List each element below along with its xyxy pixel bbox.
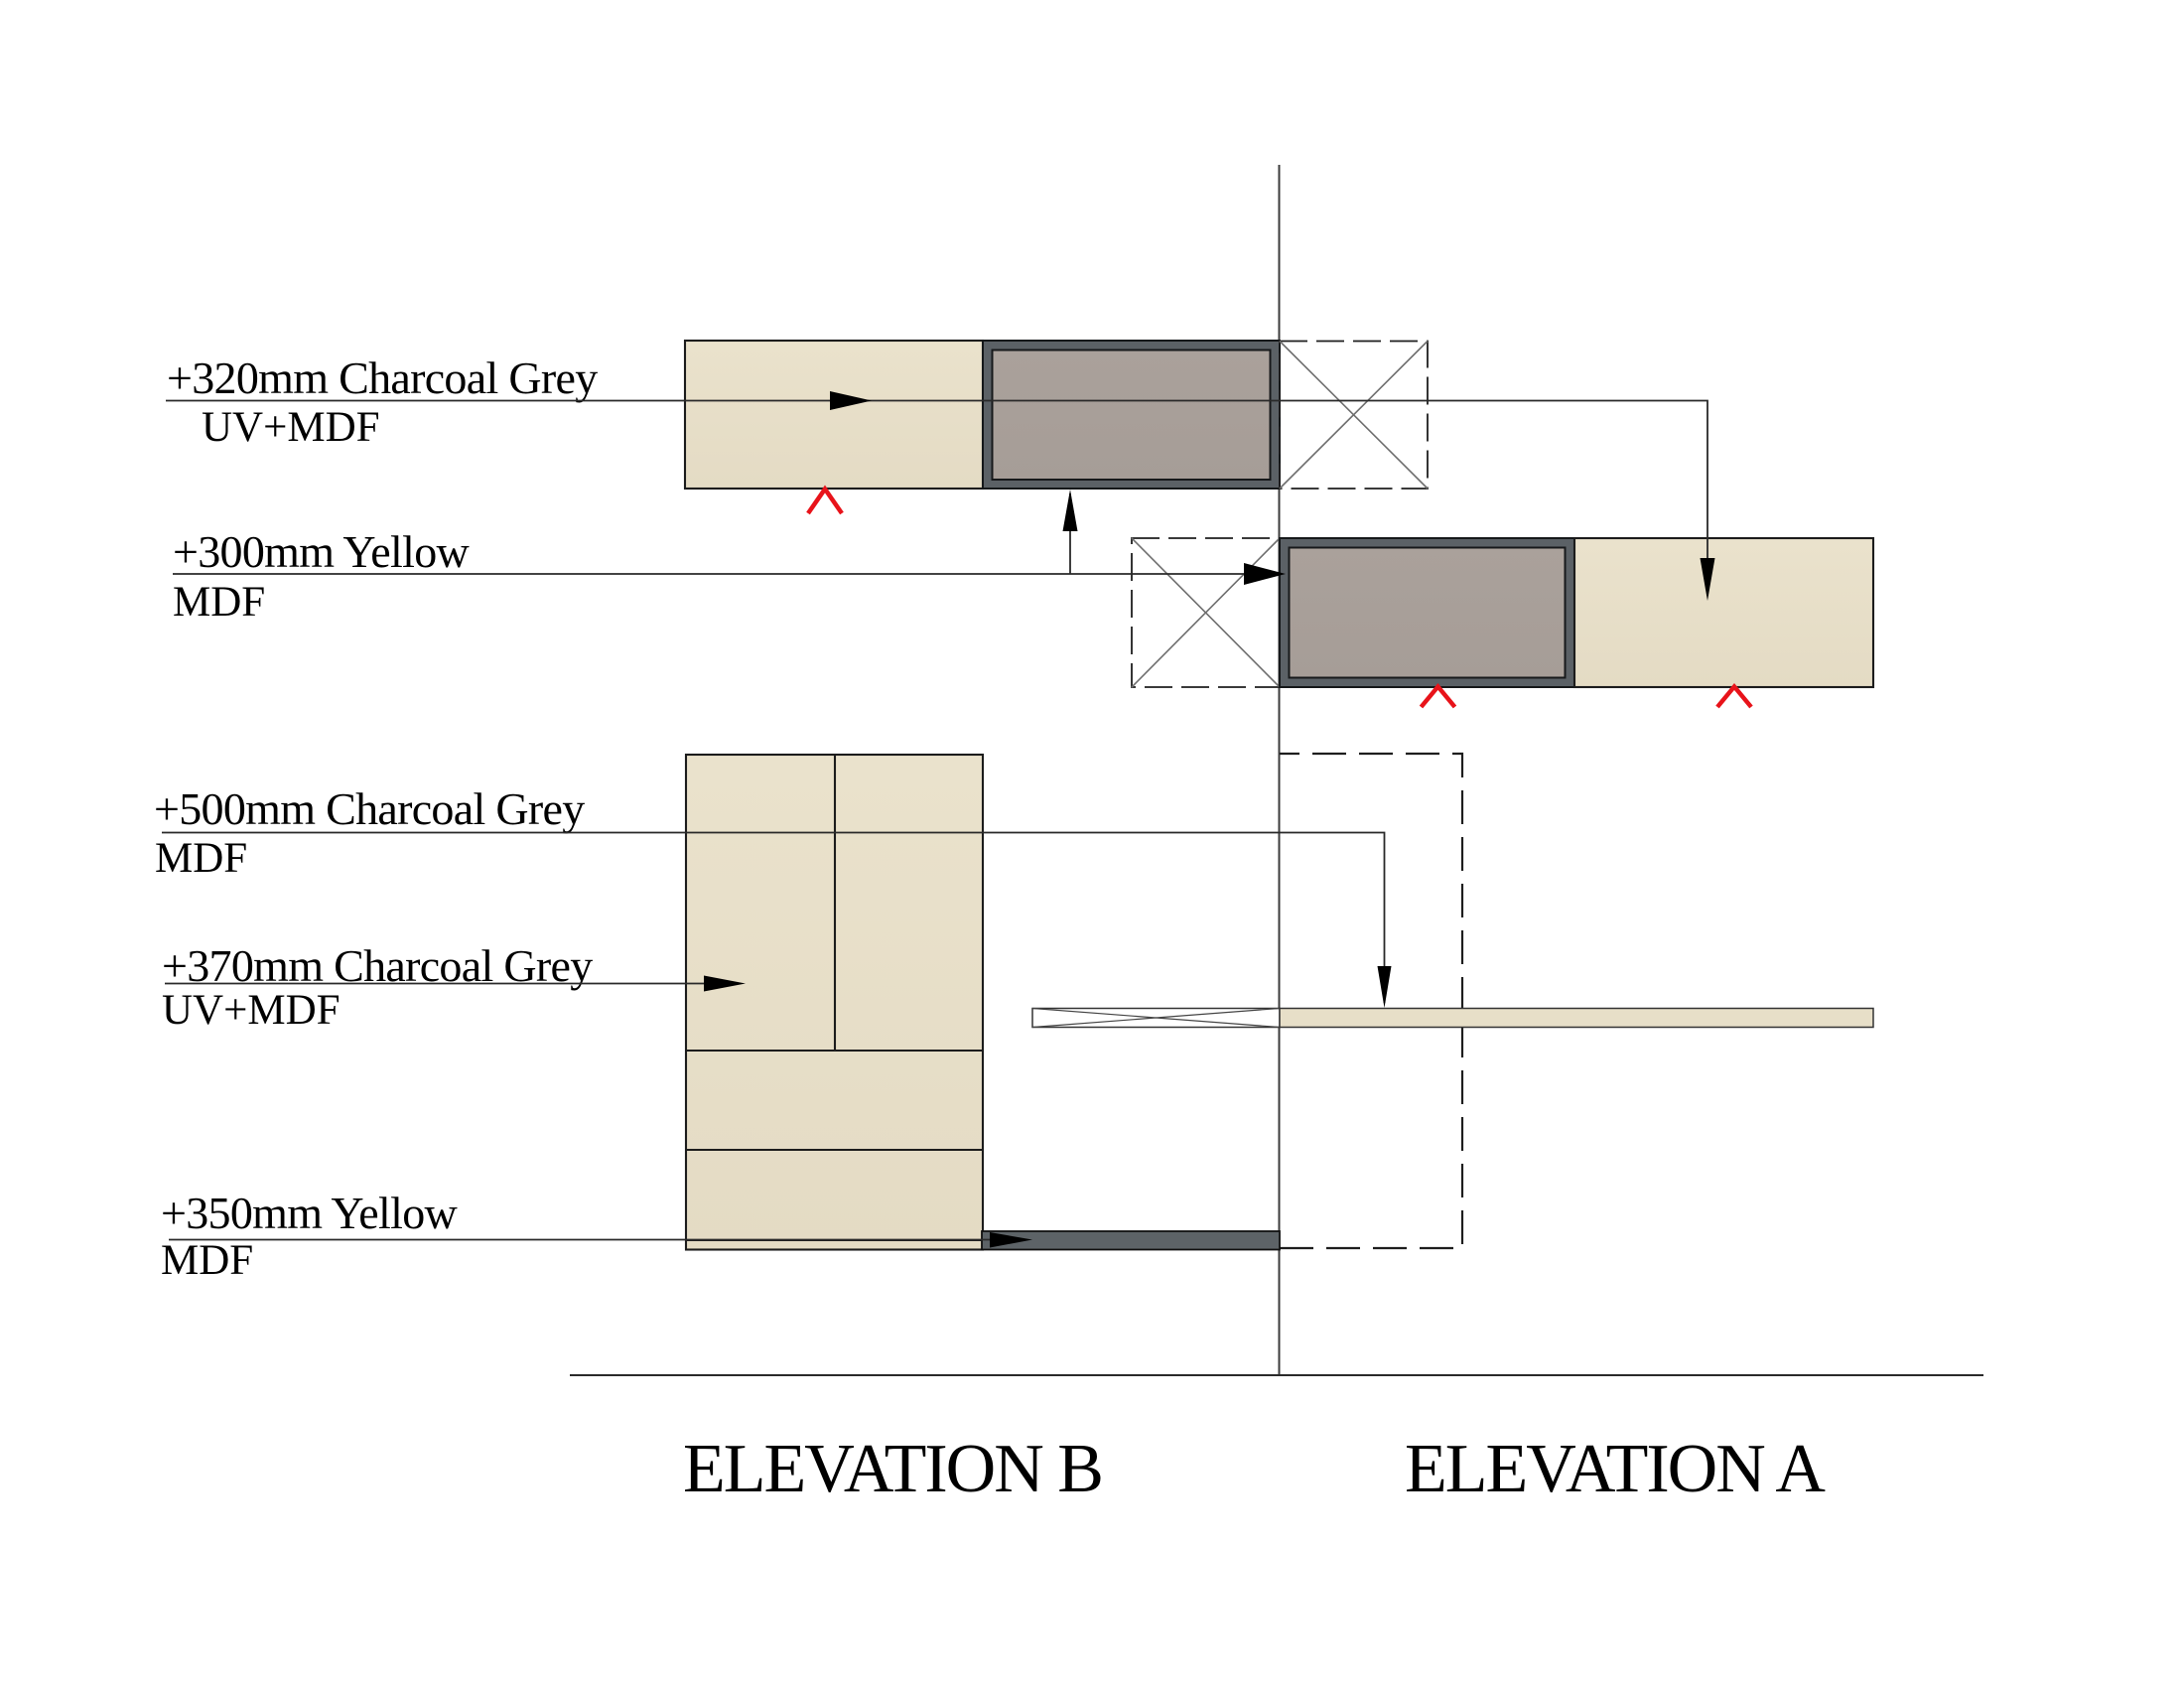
- svg-text:ELEVATION B: ELEVATION B: [683, 1431, 1102, 1507]
- svg-text:MDF: MDF: [173, 579, 265, 626]
- svg-text:ELEVATION A: ELEVATION A: [1405, 1431, 1826, 1507]
- svg-text:MDF: MDF: [161, 1237, 253, 1284]
- svg-text:+320mm Charcoal Grey: +320mm Charcoal Grey: [167, 352, 598, 403]
- svg-text:+300mm Yellow: +300mm Yellow: [173, 526, 470, 577]
- svg-text:UV+MDF: UV+MDF: [162, 987, 341, 1034]
- svg-text:+500mm Charcoal Grey: +500mm Charcoal Grey: [154, 783, 585, 834]
- svg-text:+350mm Yellow: +350mm Yellow: [161, 1188, 458, 1238]
- svg-text:MDF: MDF: [155, 835, 247, 882]
- svg-text:UV+MDF: UV+MDF: [202, 404, 380, 451]
